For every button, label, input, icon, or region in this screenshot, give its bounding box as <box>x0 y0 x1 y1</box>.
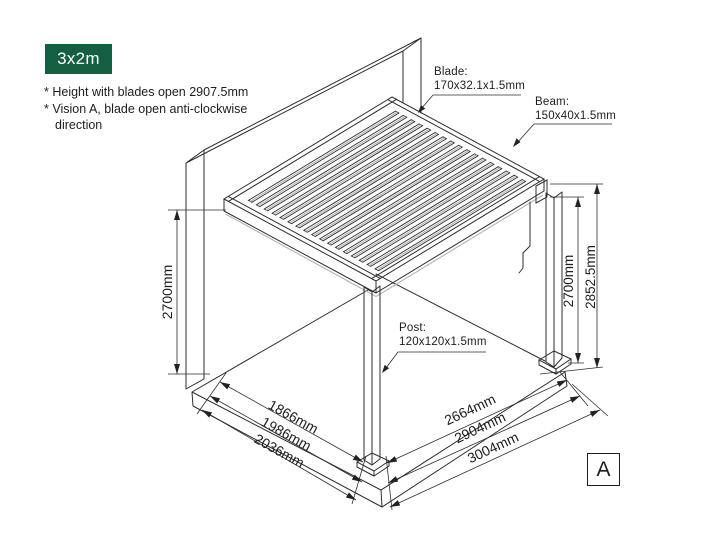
beam-label-size: 150x40x1.5mm <box>535 110 616 124</box>
beam-label-name: Beam: <box>535 96 616 110</box>
post-label-size: 120x120x1.5mm <box>399 336 487 350</box>
blade-label-name: Blade: <box>434 66 525 80</box>
vision-marker-box: A <box>587 453 620 486</box>
dim-total-height: 2852.5mm <box>583 245 598 309</box>
post-label: Post: 120x120x1.5mm <box>399 322 487 349</box>
beam-leader-arrow <box>513 138 521 147</box>
front-post <box>357 286 389 476</box>
note-height: * Height with blades open 2907.5mm <box>44 84 276 101</box>
notes: * Height with blades open 2907.5mm * Vis… <box>44 84 276 134</box>
note-vision: * Vision A, blade open anti-clockwise di… <box>44 101 276 134</box>
pergola-spec-diagram: 2700mm 2700mm 2852.5mm 1866mm 1986mm 203… <box>0 0 720 554</box>
post-label-name: Post: <box>399 322 487 336</box>
blade-label: Blade: 170x32.1x1.5mm <box>434 66 525 93</box>
size-badge: 3x2m <box>45 44 112 74</box>
beam-label: Beam: 150x40x1.5mm <box>535 96 616 123</box>
dim-post-height: 2700mm <box>561 255 576 308</box>
crank-handle <box>519 202 530 273</box>
blade-label-size: 170x32.1x1.5mm <box>434 80 525 94</box>
blade-leader-arrow <box>418 105 425 113</box>
dim-wall-height: 2700mm <box>159 265 175 319</box>
post-leader-arrow <box>382 365 389 373</box>
motor-bracket <box>536 180 547 203</box>
dimension-lines <box>177 184 600 507</box>
